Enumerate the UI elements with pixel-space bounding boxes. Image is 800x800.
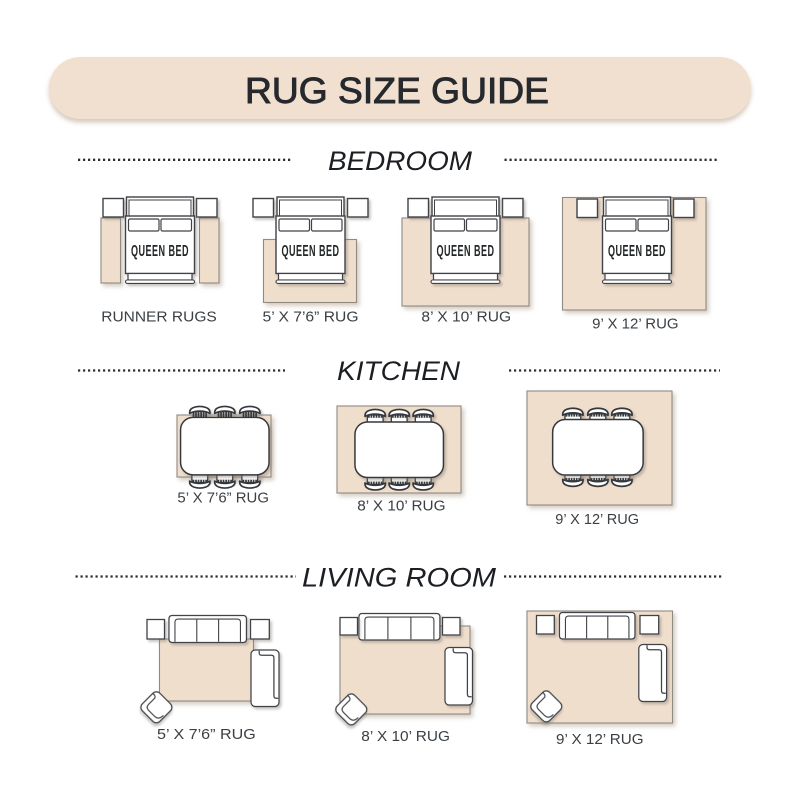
svg-text:9’ X 12’ RUG: 9’ X 12’ RUG	[592, 317, 678, 333]
svg-text:RUNNER RUGS: RUNNER RUGS	[101, 310, 217, 326]
svg-text:9’ X 12’ RUG: 9’ X 12’ RUG	[555, 512, 639, 528]
svg-text:8’ X 10’ RUG: 8’ X 10’ RUG	[357, 498, 445, 514]
svg-text:QUEEN BED: QUEEN BED	[131, 242, 189, 260]
svg-text:5’ X 7’6” RUG: 5’ X 7’6” RUG	[263, 310, 359, 326]
svg-text:BEDROOM: BEDROOM	[328, 146, 473, 176]
svg-text:RUG SIZE GUIDE: RUG SIZE GUIDE	[245, 71, 549, 111]
svg-text:QUEEN BED: QUEEN BED	[608, 242, 666, 260]
svg-text:QUEEN BED: QUEEN BED	[282, 242, 340, 260]
svg-text:9’ X 12’ RUG: 9’ X 12’ RUG	[556, 732, 644, 748]
svg-text:5’ X 7’6” RUG: 5’ X 7’6” RUG	[177, 490, 269, 506]
svg-text:QUEEN BED: QUEEN BED	[437, 242, 495, 260]
svg-text:8’ X 10’ RUG: 8’ X 10’ RUG	[361, 729, 450, 745]
svg-text:5’ X 7’6” RUG: 5’ X 7’6” RUG	[157, 727, 256, 743]
svg-text:8’ X 10’ RUG: 8’ X 10’ RUG	[421, 310, 511, 326]
svg-text:KITCHEN: KITCHEN	[337, 356, 461, 386]
svg-text:LIVING ROOM: LIVING ROOM	[302, 563, 497, 593]
